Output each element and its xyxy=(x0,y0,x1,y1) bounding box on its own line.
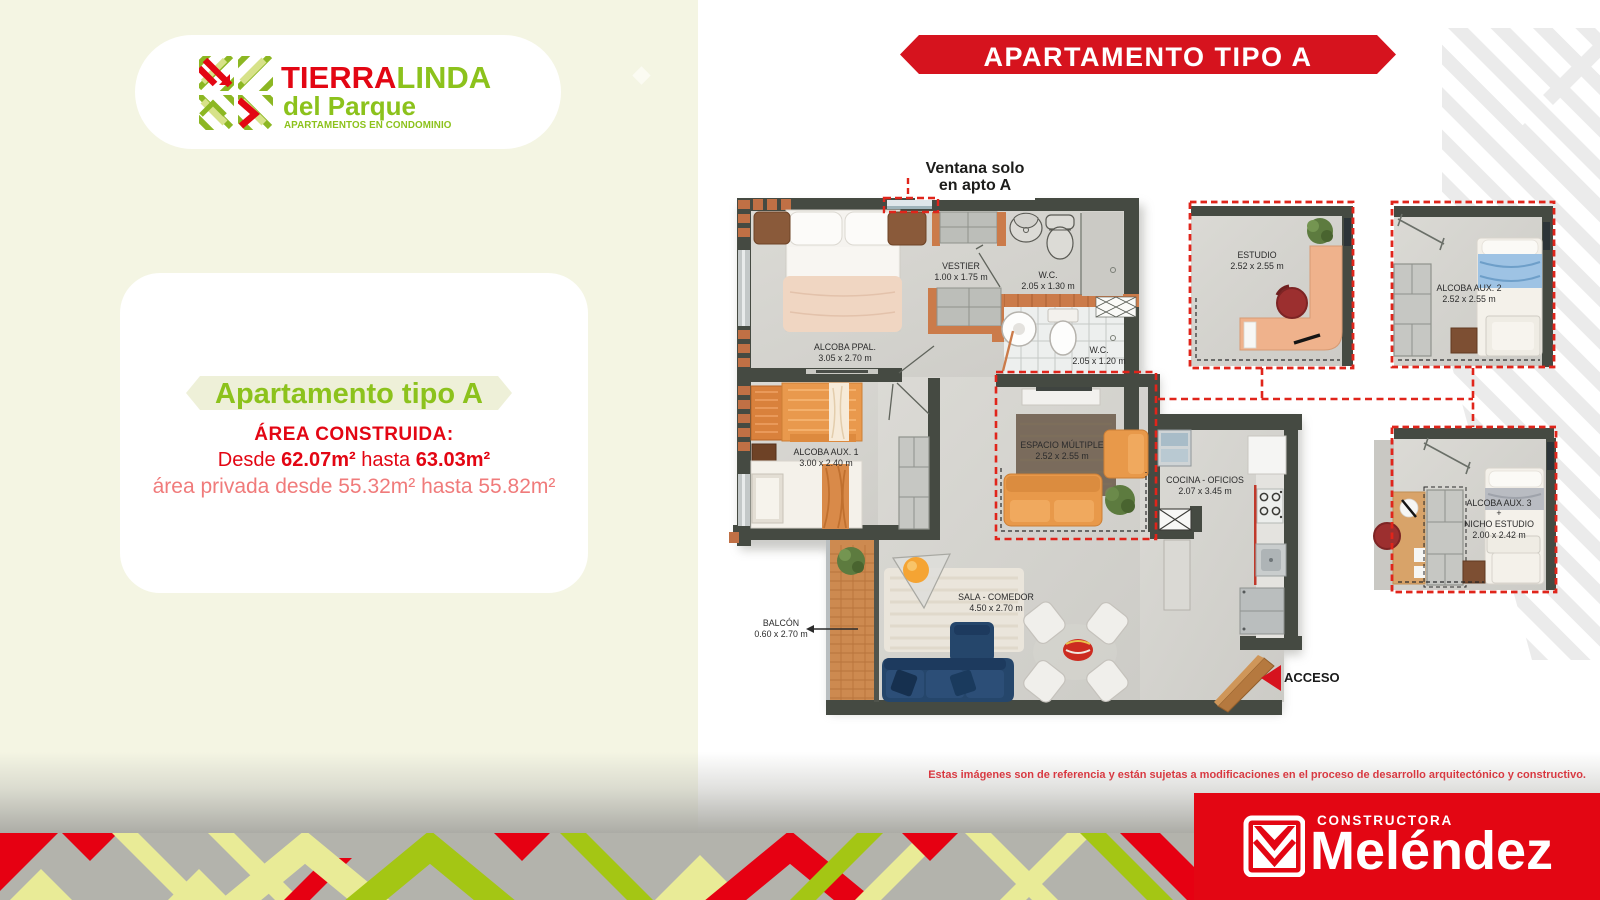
svg-text:3.00 x 2.40 m: 3.00 x 2.40 m xyxy=(799,458,852,468)
svg-text:2.07 x 3.45 m: 2.07 x 3.45 m xyxy=(1178,486,1231,496)
svg-text:ALCOBA AUX. 2: ALCOBA AUX. 2 xyxy=(1436,283,1501,293)
svg-text:1.00 x 1.75 m: 1.00 x 1.75 m xyxy=(934,272,987,282)
svg-text:W.C.: W.C. xyxy=(1038,270,1057,280)
svg-text:W.C.: W.C. xyxy=(1089,345,1108,355)
svg-text:NICHO ESTUDIO: NICHO ESTUDIO xyxy=(1464,519,1534,529)
svg-text:COCINA - OFICIOS: COCINA - OFICIOS xyxy=(1166,475,1244,485)
svg-text:3.05 x 2.70 m: 3.05 x 2.70 m xyxy=(818,353,871,363)
svg-text:2.52 x 2.55 m: 2.52 x 2.55 m xyxy=(1035,451,1088,461)
svg-text:en apto A: en apto A xyxy=(939,177,1012,194)
svg-text:4.50 x 2.70 m: 4.50 x 2.70 m xyxy=(969,603,1022,613)
svg-text:2.52 x 2.55 m: 2.52 x 2.55 m xyxy=(1230,261,1283,271)
svg-text:ALCOBA AUX. 3: ALCOBA AUX. 3 xyxy=(1466,498,1531,508)
svg-text:ALCOBA AUX. 1: ALCOBA AUX. 1 xyxy=(793,447,858,457)
svg-text:ESTUDIO: ESTUDIO xyxy=(1237,250,1276,260)
svg-text:VESTIER: VESTIER xyxy=(942,261,980,271)
svg-text:2.00 x 2.42 m: 2.00 x 2.42 m xyxy=(1472,530,1525,540)
svg-text:ESPACIO MÚLTIPLE: ESPACIO MÚLTIPLE xyxy=(1020,440,1103,450)
svg-text:+: + xyxy=(1496,508,1501,518)
svg-text:2.05 x 1.20 m: 2.05 x 1.20 m xyxy=(1072,356,1125,366)
svg-text:ACCESO: ACCESO xyxy=(1284,670,1340,685)
svg-text:SALA - COMEDOR: SALA - COMEDOR xyxy=(958,592,1034,602)
svg-text:0.60 x 2.70 m: 0.60 x 2.70 m xyxy=(754,629,807,639)
svg-text:BALCÓN: BALCÓN xyxy=(763,618,799,628)
svg-text:2.52 x 2.55 m: 2.52 x 2.55 m xyxy=(1442,294,1495,304)
svg-text:ALCOBA PPAL.: ALCOBA PPAL. xyxy=(814,342,876,352)
svg-text:2.05 x 1.30 m: 2.05 x 1.30 m xyxy=(1021,281,1074,291)
svg-text:Ventana solo: Ventana solo xyxy=(926,160,1025,177)
